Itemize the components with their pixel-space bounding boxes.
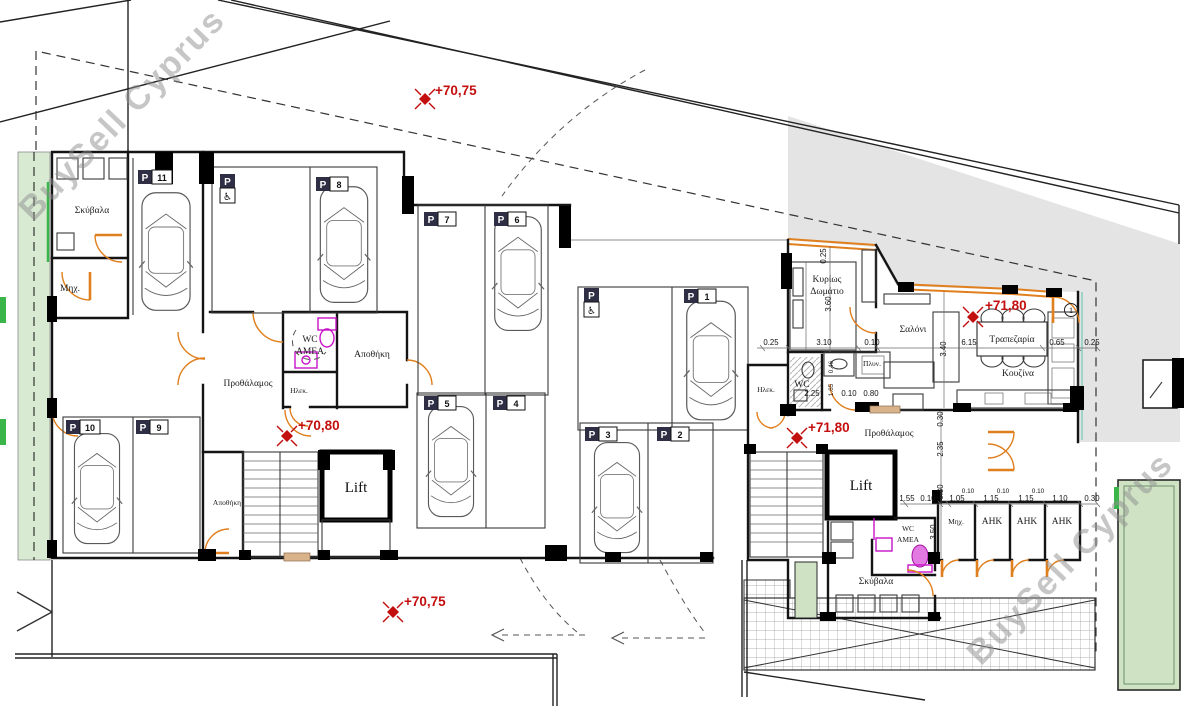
svg-text:P: P (70, 423, 77, 434)
dim-apartment-v-1: 3.60 (824, 296, 833, 312)
label-bedroom-2: Δωμάτιο (810, 287, 844, 297)
label-kitchen: Κουζίνα (1002, 368, 1034, 379)
road-edge (15, 654, 557, 706)
boundary-chevron (17, 560, 52, 657)
elevation-text-top: +70,75 (435, 83, 477, 98)
street-boundary-line (218, 0, 1179, 205)
parking-label-p3: P 3 (585, 427, 617, 441)
elevation-marker-apartment (963, 307, 983, 327)
drive-direction-arrow (492, 629, 705, 644)
label-ahk-3: AHK (1052, 517, 1073, 527)
car-p8 (318, 187, 371, 303)
label-wc-right: WC (902, 524, 914, 533)
svg-text:7: 7 (444, 215, 449, 225)
label-garbage-left: Σκύβαλα (75, 206, 109, 216)
green-marker-2 (0, 419, 6, 445)
dim-entry-v-0: 0.30 (936, 411, 945, 427)
label-ahk-1: AHK (982, 517, 1003, 527)
wheelchair-icon: ♿ (587, 306, 596, 317)
dim-entry-v-3: 3.50 (929, 524, 938, 540)
dim-apartment-h-4: 0.65 (1049, 338, 1065, 347)
car-p5 (426, 407, 476, 517)
label-lift-left: Lift (345, 480, 368, 496)
floor-plan-page: Σκύβαλα Μηχ. WC ΑΜΕΑ Αποθήκη Προθάλαμος … (0, 0, 1200, 706)
label-living: Σαλόνι (900, 325, 927, 335)
garage-building (47, 152, 787, 563)
dim-entry-h-1: 0.10 (920, 494, 936, 503)
label-dining: Τραπεζαρία (989, 334, 1034, 345)
wheelchair-icon: ♿ (223, 192, 232, 203)
elevation-marker-top (415, 89, 435, 109)
label-mech-left: Μηχ. (60, 284, 80, 294)
dim-entry-v-1: 2.35 (936, 441, 945, 457)
label-garbage-right: Σκύβαλα (859, 577, 893, 587)
dim-wc-h-0: 2.25 (804, 389, 820, 398)
svg-text:P: P (428, 215, 435, 226)
label-vestibule-right: Προθάλαμος (864, 429, 913, 439)
dim-entry-small-0: 0.10 (962, 488, 975, 495)
parking-label-p10: P 10 (66, 420, 100, 434)
svg-text:2: 2 (677, 430, 682, 440)
watermark-top-left: BuySell Cyprus (11, 1, 232, 228)
dim-entry-h-0: 1.55 (899, 494, 915, 503)
parking-label-p5: P 5 (424, 396, 456, 410)
svg-text:10: 10 (85, 423, 95, 433)
label-vestibule-left: Προθάλαμος (223, 379, 272, 389)
dim-apartment-h-5: 0.25 (1084, 338, 1100, 347)
label-elec-left: Ηλεκ. (290, 386, 308, 395)
label-laundry: Πλυν. (863, 359, 881, 368)
label-storage-bottom: Αποθήκη (213, 498, 241, 507)
dim-wc-h-1: 0.10 (841, 389, 857, 398)
parking-label-p4: P 4 (493, 396, 525, 410)
green-marker-1 (0, 297, 6, 323)
label-mech-right: Μηχ. (948, 517, 964, 526)
elevation-text-entrance: +71,80 (808, 420, 850, 435)
svg-text:P: P (588, 291, 595, 302)
label-amea-right: ΑΜΕΑ (897, 535, 920, 544)
svg-text:P: P (498, 215, 505, 226)
dim-entry-h-5: 1.10 (1052, 494, 1068, 503)
parking-label-p9: P 9 (136, 420, 168, 434)
svg-text:P: P (224, 177, 231, 188)
elevation-marker-garage (277, 426, 297, 446)
svg-text:5: 5 (444, 399, 449, 409)
dim-wc-v-1: 1.65 (828, 383, 835, 396)
label-elec-right: Ηλεκ. (757, 385, 775, 394)
label-bedroom-1: Κυρίως (813, 275, 842, 285)
car-p1 (684, 301, 738, 420)
floor-plan-canvas: Σκύβαλα Μηχ. WC ΑΜΕΑ Αποθήκη Προθάλαμος … (0, 0, 1200, 706)
elevation-text-bottom: +70,75 (404, 594, 446, 609)
elevation-marker-entrance (787, 428, 807, 448)
dim-apartment-v-0: 0.25 (819, 248, 828, 264)
car-p3 (592, 443, 642, 553)
parking-label-p7: P 7 (424, 212, 456, 226)
dim-apartment-v-2: 3.40 (939, 341, 948, 357)
dim-apartment-h-1: 3.10 (816, 338, 832, 347)
parking-label-p1: P 1 (684, 289, 716, 303)
dim-entry-small-2: 0.10 (1032, 488, 1045, 495)
dim-apartment-h-0: 0.25 (763, 338, 779, 347)
car-p6 (492, 217, 544, 331)
label-wc-amea-wc: WC (302, 335, 317, 345)
entrance-number: 1 (1069, 305, 1073, 315)
svg-text:P: P (688, 292, 695, 303)
elevation-marker-bottom (383, 602, 403, 622)
svg-text:P: P (320, 180, 327, 191)
parking-label-accessible-1: P ♿ (220, 174, 235, 203)
dim-entry-h-4: 1.15 (1018, 494, 1034, 503)
svg-text:P: P (142, 173, 149, 184)
svg-text:8: 8 (336, 180, 341, 190)
elevation-text-garage: +70,80 (298, 418, 340, 433)
dim-entry-h-2: 1.05 (949, 494, 965, 503)
svg-text:P: P (497, 399, 504, 410)
staircase-right (750, 452, 823, 557)
svg-text:6: 6 (514, 215, 519, 225)
elevation-text-apartment: +71,80 (985, 298, 1027, 313)
label-lift-right: Lift (850, 478, 873, 494)
dim-entry-v-2: 0.30 (936, 484, 945, 500)
svg-text:P: P (140, 423, 147, 434)
label-wc-amea-amea: ΑΜΕΑ (296, 347, 324, 357)
parking-label-accessible-2: P ♿ (584, 288, 599, 317)
svg-text:9: 9 (156, 423, 161, 433)
dim-entry-small-1: 0.10 (997, 488, 1010, 495)
label-ahk-2: AHK (1017, 517, 1038, 527)
dim-apartment-h-3: 6.15 (961, 338, 977, 347)
dim-wc-h-2: 0.80 (863, 389, 879, 398)
dim-wc-v-0: 0.46 (828, 360, 835, 373)
svg-text:P: P (589, 430, 596, 441)
car-p11 (139, 193, 193, 311)
svg-text:4: 4 (513, 399, 518, 409)
label-storage-mid: Αποθήκη (354, 350, 390, 360)
setback-dashed-line (36, 51, 1096, 655)
parking-label-p6: P 6 (494, 212, 526, 226)
svg-text:P: P (428, 399, 435, 410)
dim-apartment-h-2: 0.10 (864, 338, 880, 347)
svg-text:11: 11 (157, 173, 167, 183)
svg-text:1: 1 (704, 292, 709, 302)
parking-label-p11: P 11 (138, 170, 172, 184)
svg-text:P: P (661, 430, 668, 441)
dim-entry-h-3: 1.15 (983, 494, 999, 503)
car-p10 (72, 434, 122, 544)
staircase-left (243, 452, 318, 557)
svg-text:3: 3 (605, 430, 610, 440)
parking-label-p8: P 8 (316, 177, 348, 191)
parking-label-p2: P 2 (657, 427, 689, 441)
